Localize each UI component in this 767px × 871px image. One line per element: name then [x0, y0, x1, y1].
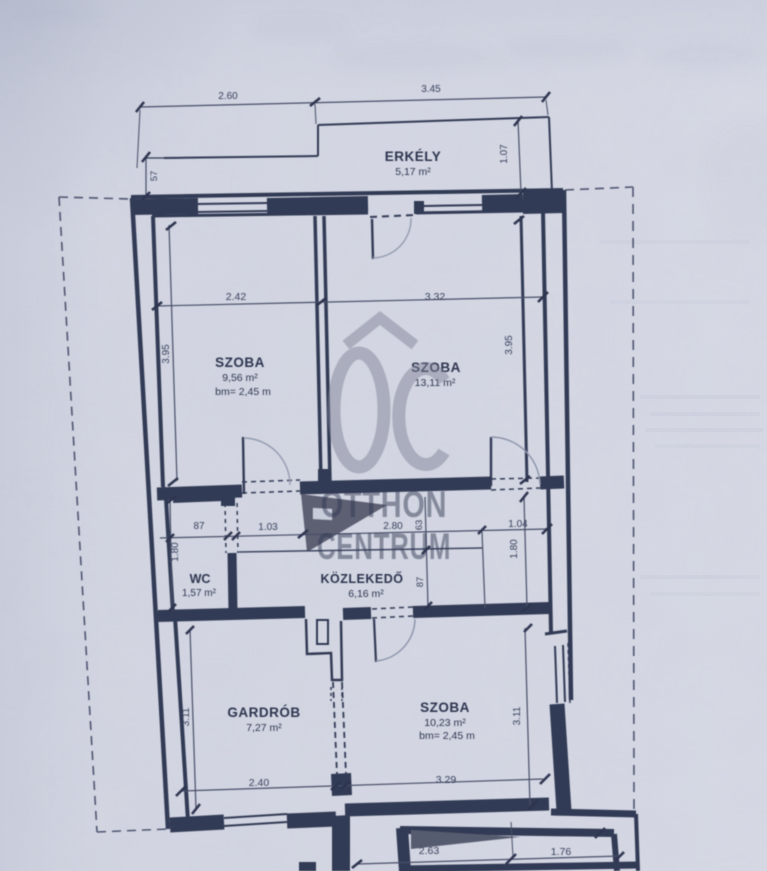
svg-text:1.80: 1.80 [509, 539, 520, 559]
svg-text:SZOBA: SZOBA [420, 700, 470, 715]
svg-text:87: 87 [193, 521, 205, 532]
svg-text:GARDRÓB: GARDRÓB [227, 705, 300, 720]
svg-text:57: 57 [149, 171, 160, 182]
svg-text:3.29: 3.29 [436, 774, 457, 786]
svg-text:3.45: 3.45 [421, 84, 441, 95]
svg-text:6,16 m²: 6,16 m² [348, 588, 384, 600]
svg-text:OTTHON: OTTHON [321, 485, 447, 526]
svg-text:2.42: 2.42 [226, 291, 247, 303]
svg-text:1.04: 1.04 [508, 519, 528, 530]
svg-text:1,57 m²: 1,57 m² [182, 588, 217, 599]
svg-text:3.11: 3.11 [181, 707, 192, 726]
svg-text:10,23 m²: 10,23 m² [424, 717, 466, 729]
svg-text:3.95: 3.95 [161, 344, 172, 364]
svg-text:3.32: 3.32 [425, 291, 446, 303]
svg-text:9,56 m²: 9,56 m² [222, 372, 258, 384]
svg-text:1.03: 1.03 [258, 522, 278, 533]
svg-text:7,27 m²: 7,27 m² [246, 722, 282, 734]
svg-text:1.07: 1.07 [499, 144, 510, 164]
svg-text:2.60: 2.60 [218, 91, 238, 102]
svg-text:KÖZLEKEDŐ: KÖZLEKEDŐ [321, 571, 404, 586]
svg-text:3.95: 3.95 [504, 335, 515, 355]
svg-text:5,17 m²: 5,17 m² [395, 166, 431, 178]
svg-text:CENTRUM: CENTRUM [317, 525, 451, 567]
svg-text:87: 87 [415, 577, 426, 588]
svg-text:bm= 2,45 m: bm= 2,45 m [419, 730, 475, 742]
svg-text:1.76: 1.76 [551, 846, 572, 858]
svg-text:2.63: 2.63 [419, 845, 440, 857]
svg-text:SZOBA: SZOBA [215, 355, 265, 370]
svg-text:1.80: 1.80 [170, 542, 181, 562]
svg-text:3.11: 3.11 [512, 706, 523, 725]
svg-text:2.40: 2.40 [249, 777, 270, 789]
svg-text:bm= 2,45 m: bm= 2,45 m [215, 386, 271, 398]
svg-text:ERKÉLY: ERKÉLY [385, 149, 442, 164]
svg-text:WC: WC [190, 572, 211, 586]
